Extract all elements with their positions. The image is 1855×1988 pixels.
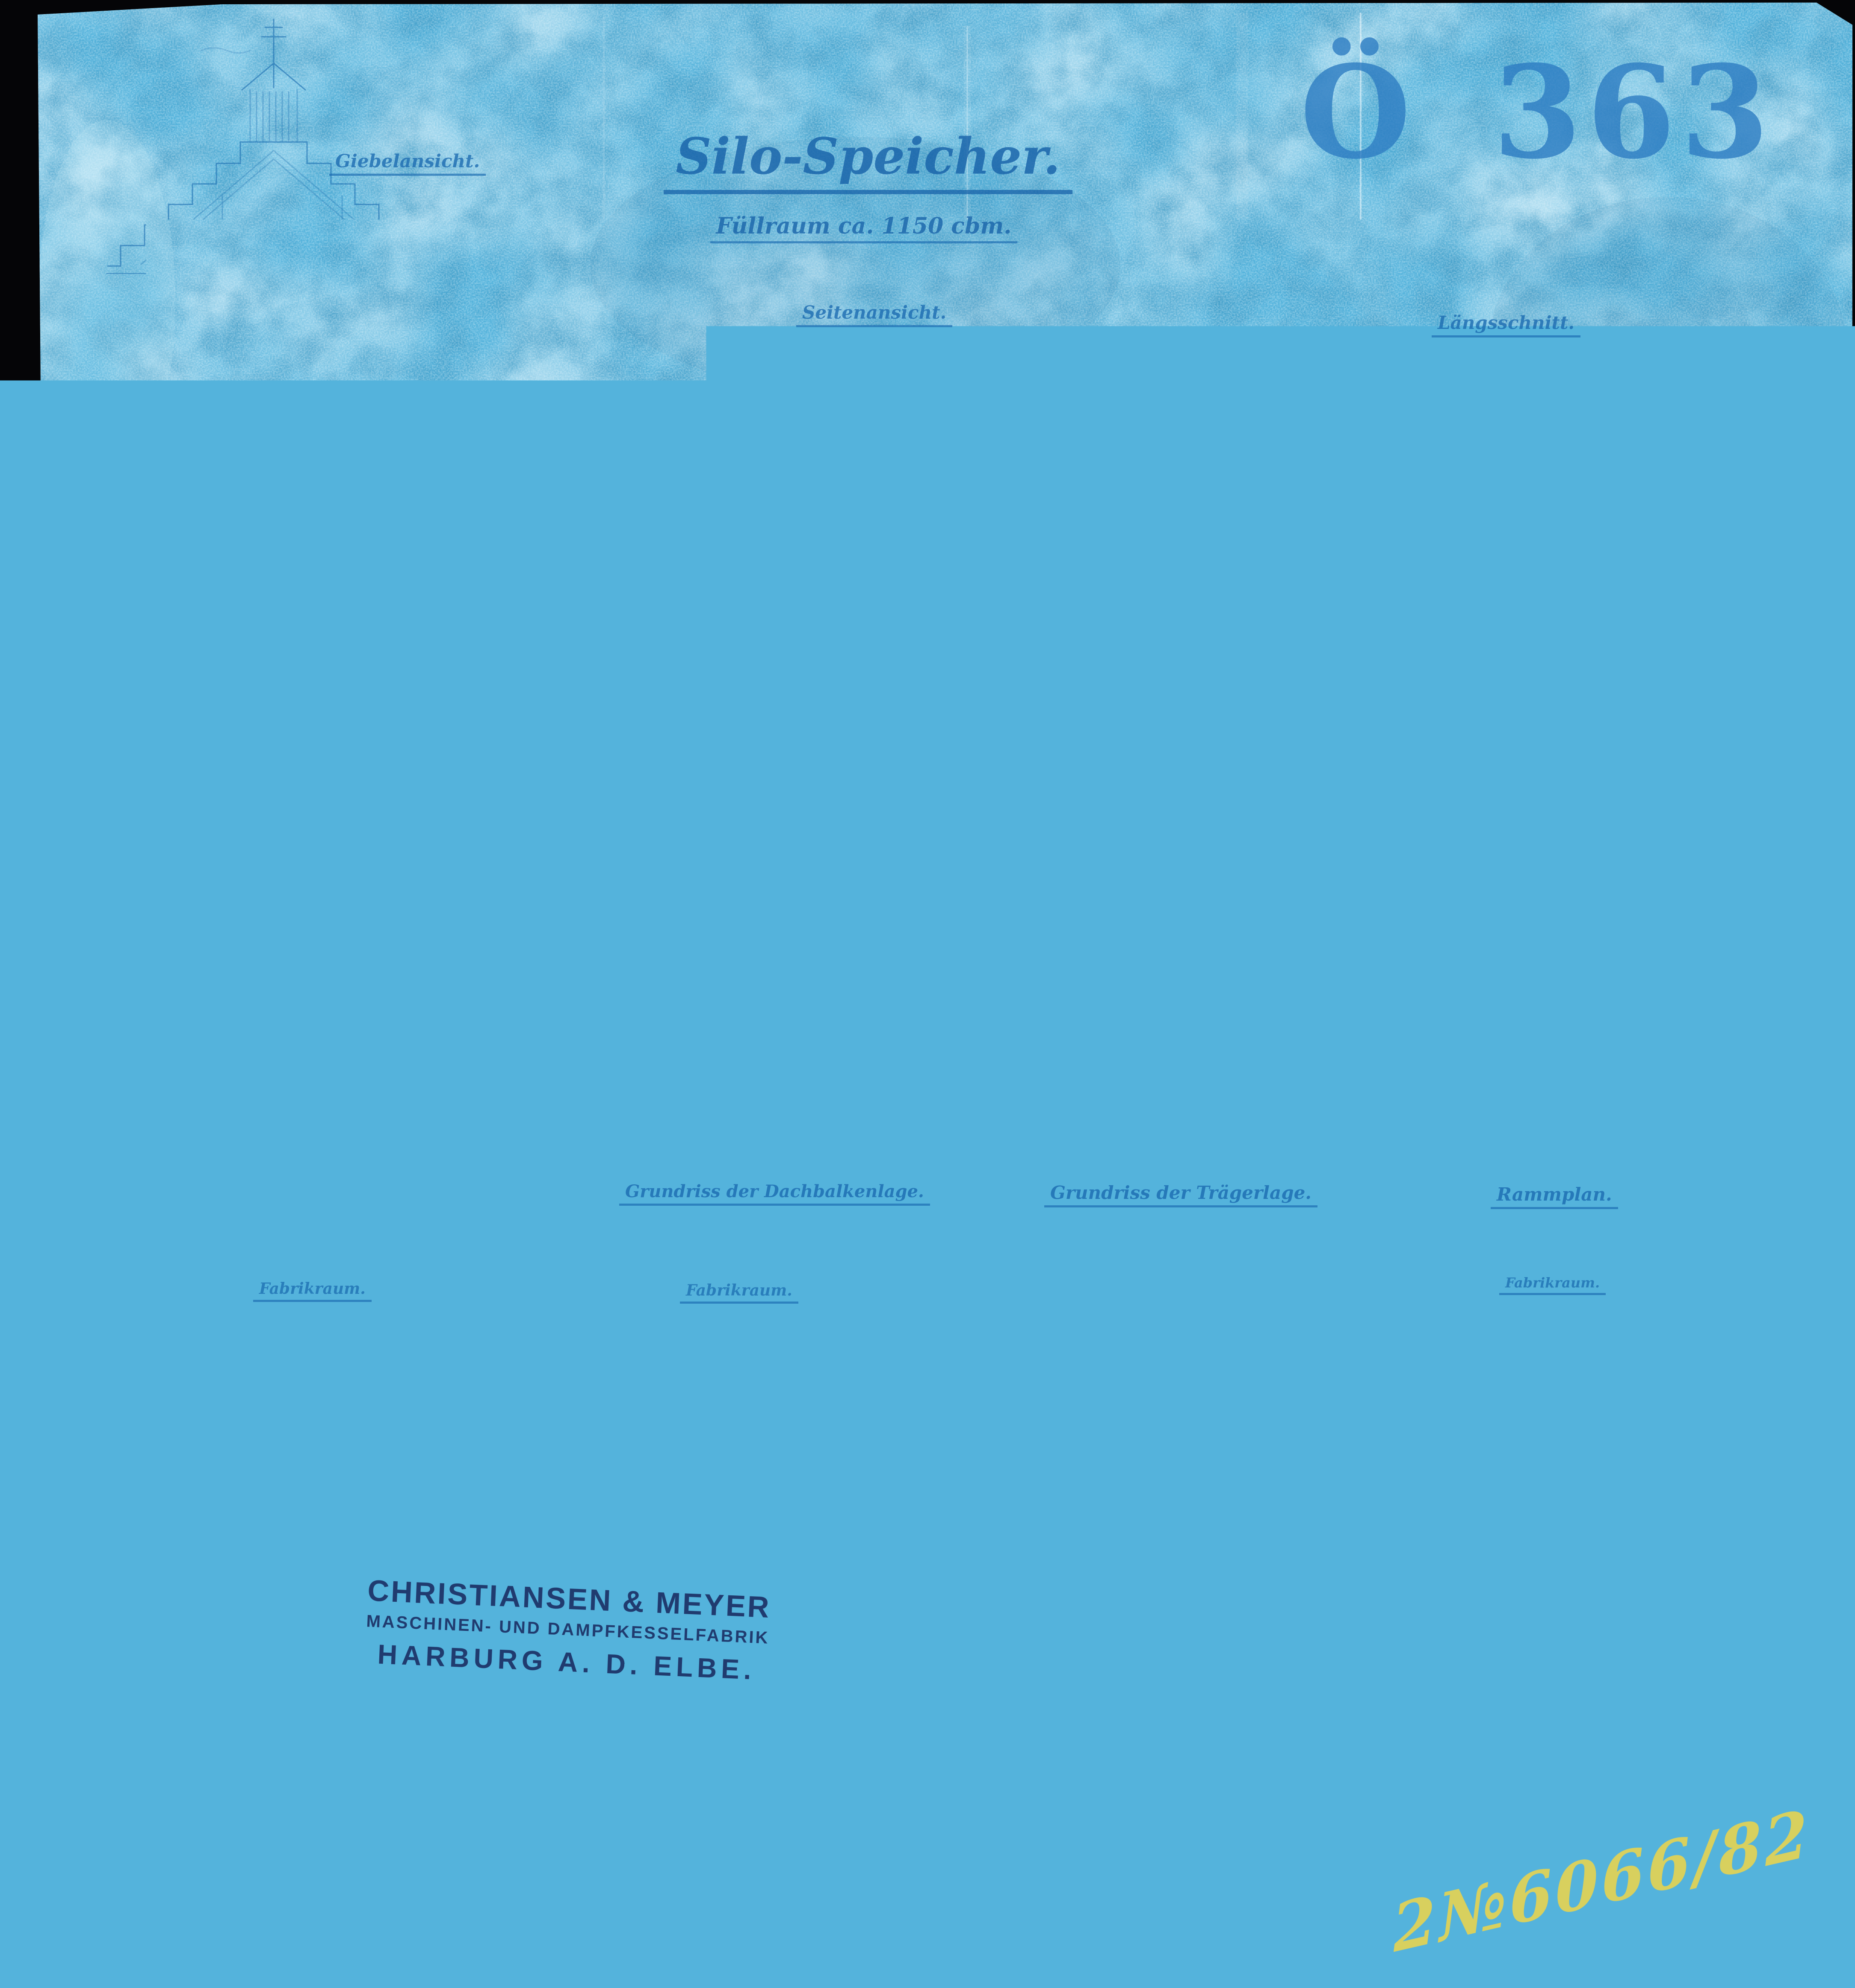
page-title-text: Silo-Speicher. <box>664 127 1072 194</box>
label-longitudinal-section: Längsschnitt. <box>1432 312 1580 337</box>
label-side-elevation: Seitenansicht. <box>796 302 952 327</box>
drawing-linework <box>0 0 1855 1988</box>
blueprint-sheet: Ö 363 Silo-Speicher. Füllraum ca. 1150 c… <box>0 0 1855 1988</box>
room-label-fabrikraum-3: Fabrikraum. <box>1499 1275 1606 1295</box>
label-girder-plan: Grundriss der Trägerlage. <box>1044 1182 1317 1207</box>
page-subtitle-text: Füllraum ca. 1150 cbm. <box>710 213 1018 243</box>
page-title: Silo-Speicher. <box>659 127 1078 194</box>
label-gable-section: Giebelansicht. <box>329 151 486 176</box>
label-silo-floor-plan: Silolager-Grundriss. <box>222 1183 439 1208</box>
maker-stamp: CHRISTIANSEN & MEYER MASCHINEN- UND DAMP… <box>352 1573 784 1687</box>
label-piling-plan: Rammplan. <box>1491 1184 1618 1209</box>
room-label-fabrikraum-2: Fabrikraum. <box>680 1281 798 1304</box>
archive-stamp: Ö 363 <box>1300 38 1774 187</box>
label-roof-beam-plan: Grundriss der Dachbalkenlage. <box>619 1181 930 1206</box>
room-label-fabrikraum-1: Fabrikraum. <box>253 1280 372 1302</box>
page-subtitle: Füllraum ca. 1150 cbm. <box>701 213 1026 243</box>
